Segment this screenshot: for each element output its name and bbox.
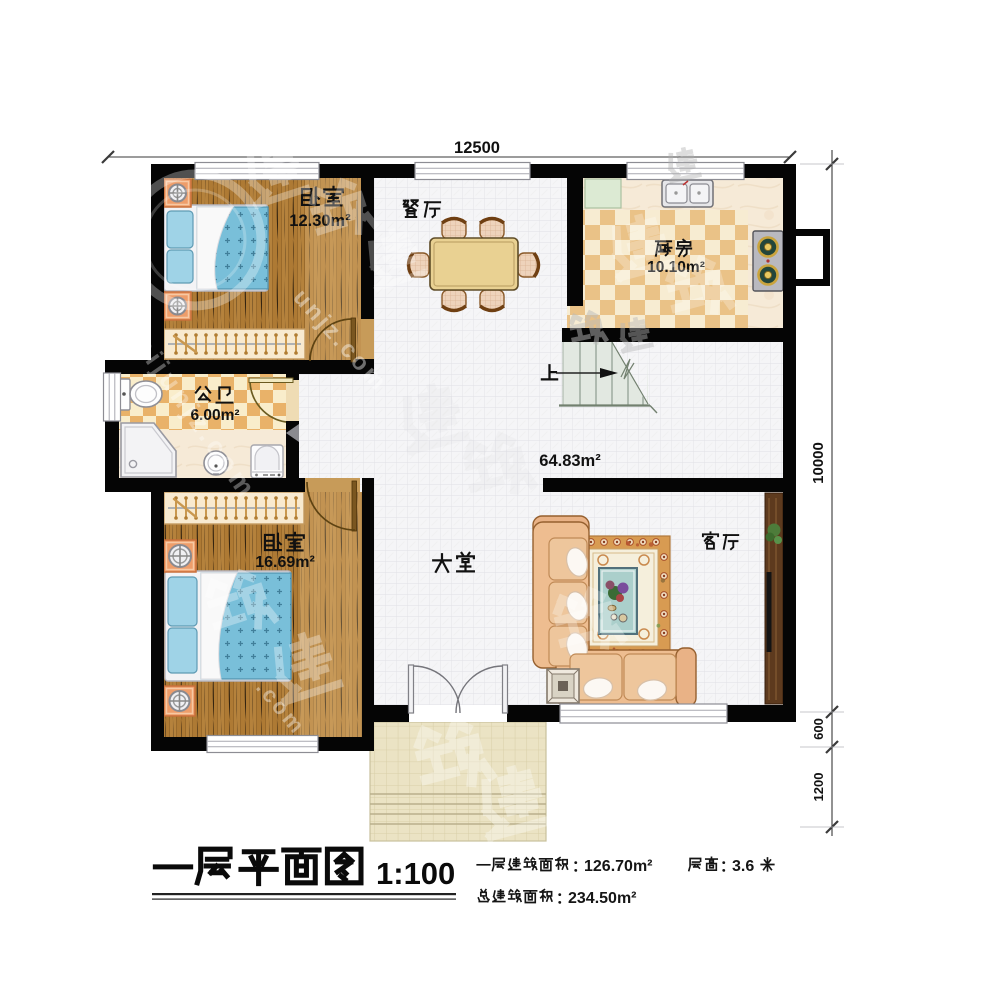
svg-text:126.70m²: 126.70m² (584, 858, 653, 875)
svg-text:1:100: 1:100 (376, 856, 455, 891)
svg-text:600: 600 (811, 718, 826, 740)
svg-text:64.83m²: 64.83m² (539, 452, 601, 470)
svg-text:10000: 10000 (810, 442, 827, 484)
svg-text:234.50m²: 234.50m² (568, 890, 637, 907)
svg-text:3.6: 3.6 (732, 858, 754, 875)
svg-text:1200: 1200 (811, 773, 826, 802)
svg-text:16.69m²: 16.69m² (255, 554, 315, 571)
svg-text:12500: 12500 (454, 139, 500, 157)
